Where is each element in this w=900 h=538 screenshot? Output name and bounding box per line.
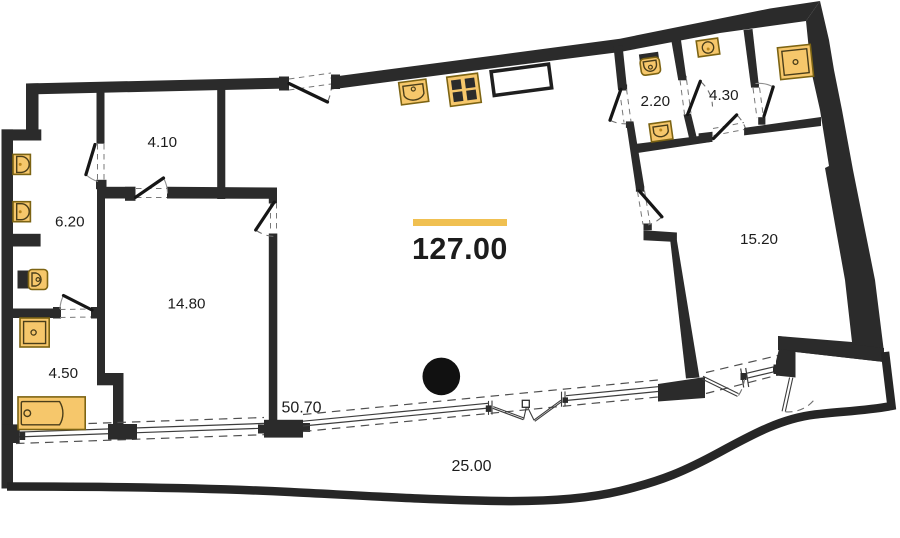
svg-text:2.20: 2.20 xyxy=(641,93,671,110)
svg-text:6.20: 6.20 xyxy=(55,214,85,231)
svg-text:50.70: 50.70 xyxy=(282,400,322,417)
svg-text:14.80: 14.80 xyxy=(168,296,206,313)
svg-text:25.00: 25.00 xyxy=(452,458,492,475)
svg-text:15.20: 15.20 xyxy=(740,231,778,248)
svg-text:4.30: 4.30 xyxy=(709,87,739,104)
svg-text:4.50: 4.50 xyxy=(49,365,79,382)
svg-text:127.00: 127.00 xyxy=(412,232,508,266)
svg-text:4.10: 4.10 xyxy=(148,134,178,151)
